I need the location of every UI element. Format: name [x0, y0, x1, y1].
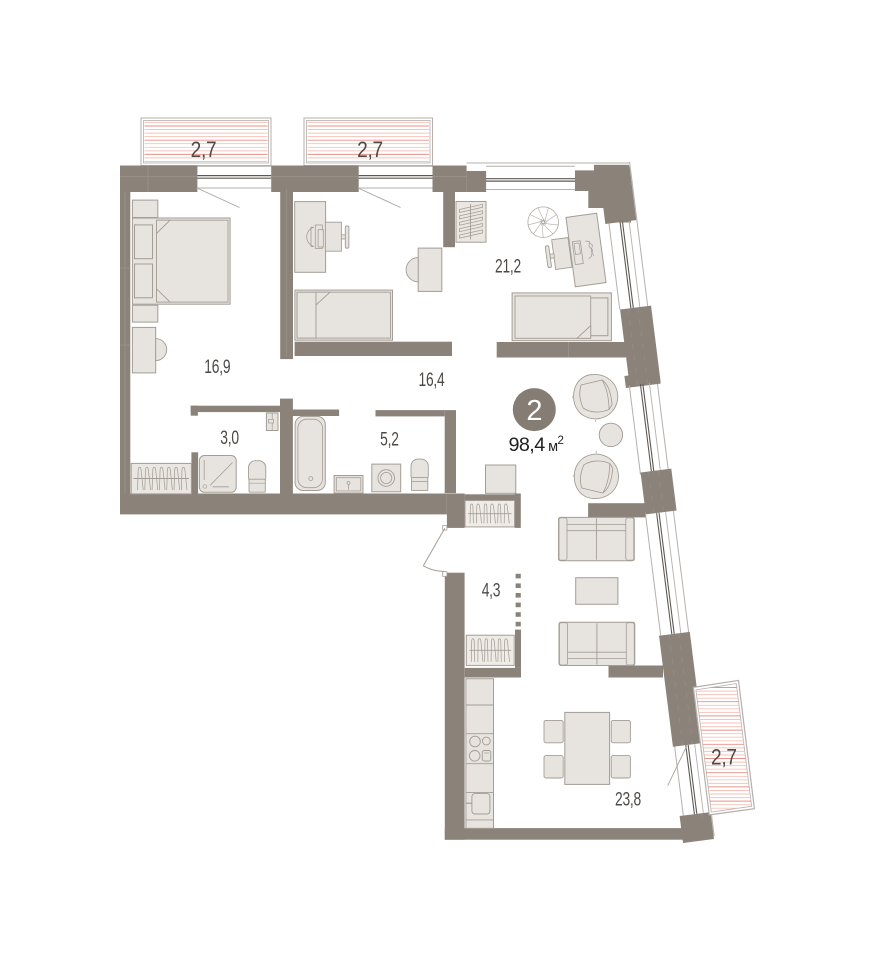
- svg-text:2,7: 2,7: [711, 745, 737, 770]
- svg-text:23,8: 23,8: [615, 790, 641, 811]
- svg-text:5,2: 5,2: [380, 430, 399, 451]
- svg-text:16,4: 16,4: [419, 370, 446, 391]
- svg-text:3,0: 3,0: [220, 428, 239, 449]
- svg-text:16,9: 16,9: [204, 357, 230, 378]
- svg-text:21,2: 21,2: [495, 257, 521, 278]
- svg-text:2,7: 2,7: [191, 137, 217, 162]
- svg-text:4,3: 4,3: [482, 581, 501, 602]
- svg-text:2,7: 2,7: [357, 137, 383, 162]
- svg-text:2: 2: [526, 395, 542, 427]
